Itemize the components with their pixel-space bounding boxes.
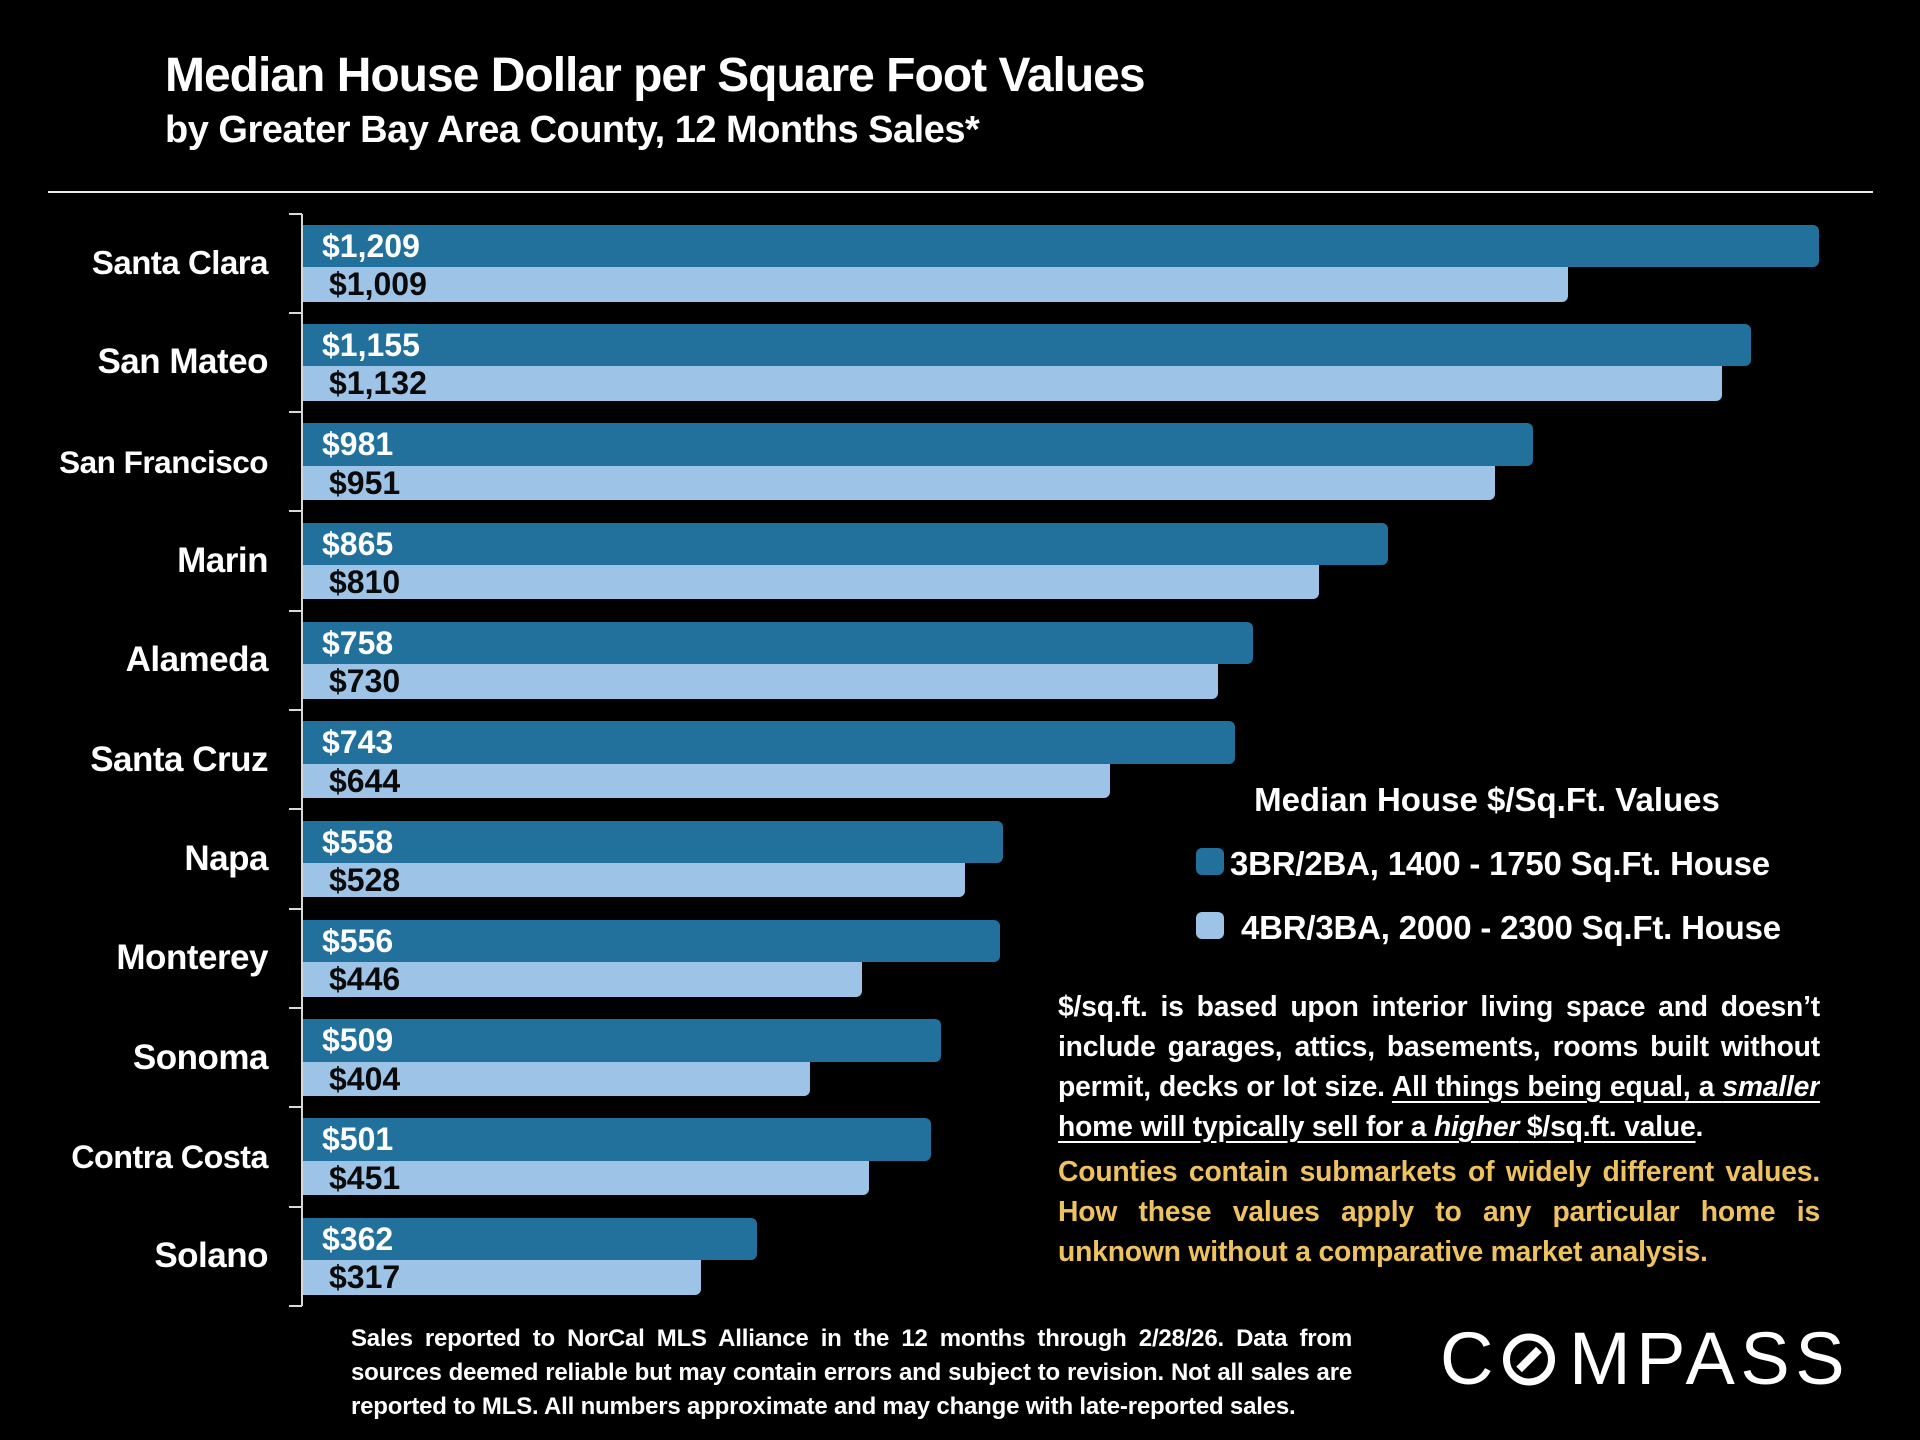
svg-text:MPASS: MPASS — [1569, 1320, 1850, 1400]
svg-text:C: C — [1442, 1320, 1493, 1400]
